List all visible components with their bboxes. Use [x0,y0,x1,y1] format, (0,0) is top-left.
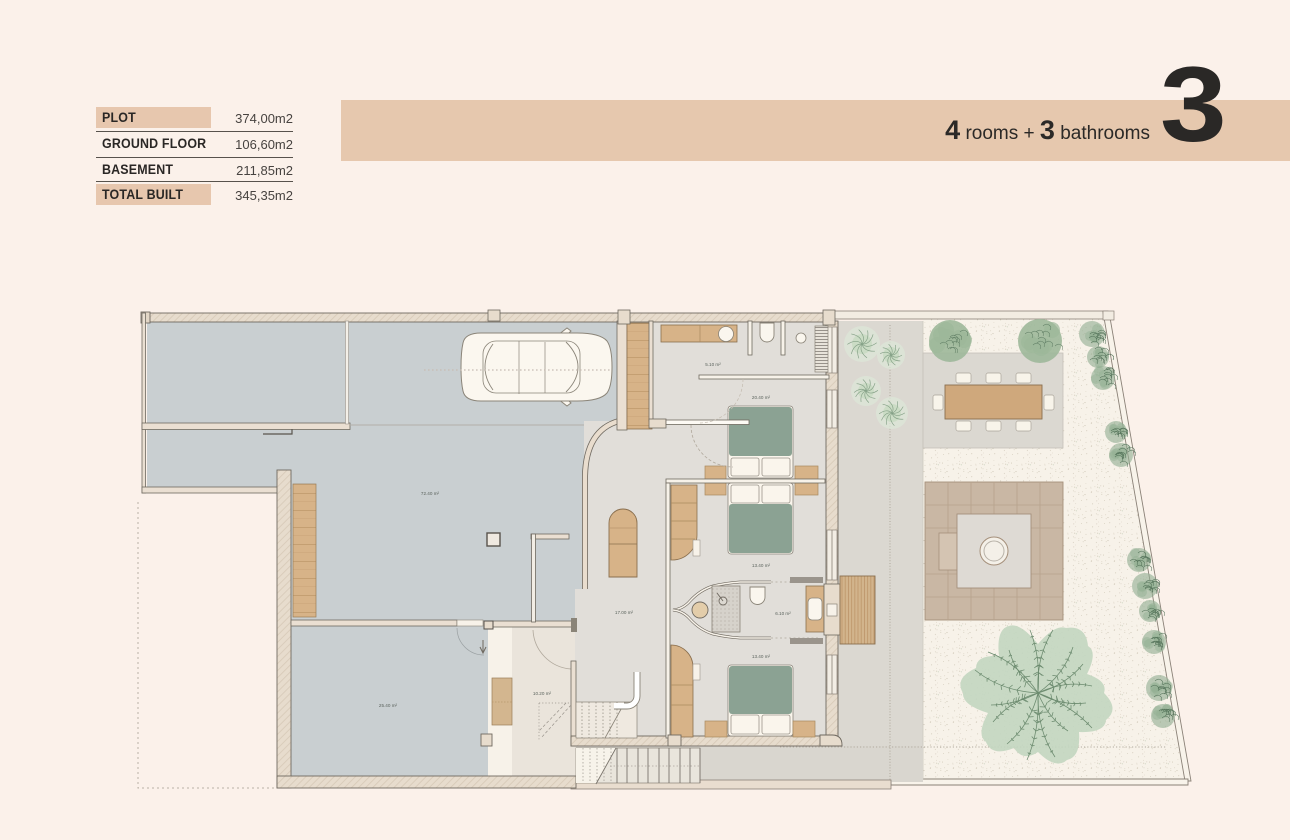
svg-text:25.40 m²: 25.40 m² [379,703,398,708]
svg-text:5.10 m²: 5.10 m² [705,362,721,367]
svg-text:13.40 m²: 13.40 m² [752,654,771,659]
svg-text:17.00 m²: 17.00 m² [615,610,634,615]
svg-text:72.40 m²: 72.40 m² [421,491,440,496]
svg-text:10.20 m²: 10.20 m² [533,691,552,696]
svg-text:13.40 m²: 13.40 m² [752,563,771,568]
svg-text:6.10 m²: 6.10 m² [775,611,791,616]
svg-text:20.40 m²: 20.40 m² [752,395,771,400]
